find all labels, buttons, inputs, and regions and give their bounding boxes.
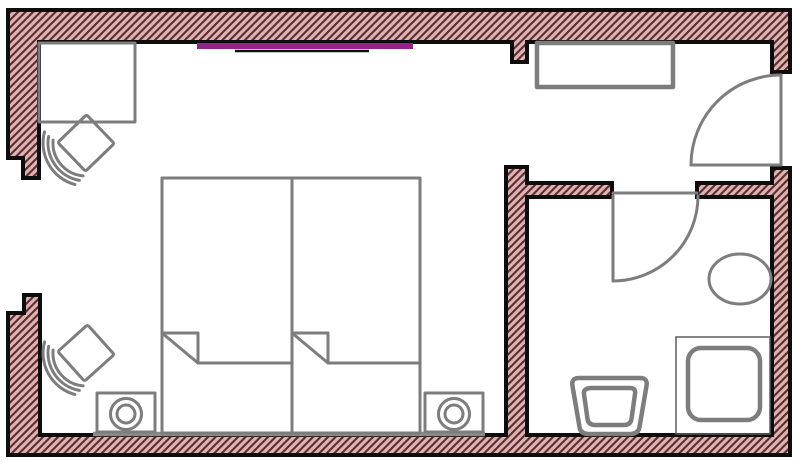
bathroom-door-swing-arc (613, 196, 698, 281)
toilet-bowl (584, 388, 635, 425)
wardrobe-shelf (537, 43, 673, 87)
window (197, 43, 413, 51)
entry-door (691, 75, 781, 165)
armchair-lower-seat (58, 325, 114, 381)
armchair-upper (43, 115, 114, 185)
window-accent-band (197, 43, 413, 49)
armchair-lower (43, 325, 114, 395)
toilet (572, 378, 646, 434)
outer-wall-upper (8, 10, 790, 178)
desk (39, 43, 135, 122)
sink-oval (709, 254, 771, 304)
armchair-lower-back-arc-1 (53, 350, 83, 386)
nightstand-right (425, 393, 483, 432)
floor-plan-canvas (0, 0, 799, 460)
shower-tray (688, 348, 760, 420)
nightstand-left (97, 393, 155, 432)
floor-plan-page (0, 0, 799, 460)
shower (676, 337, 770, 434)
armchair-upper-back-arc-1 (53, 140, 83, 176)
entry-door-swing-arc (691, 75, 781, 165)
bathroom-door (613, 193, 698, 281)
